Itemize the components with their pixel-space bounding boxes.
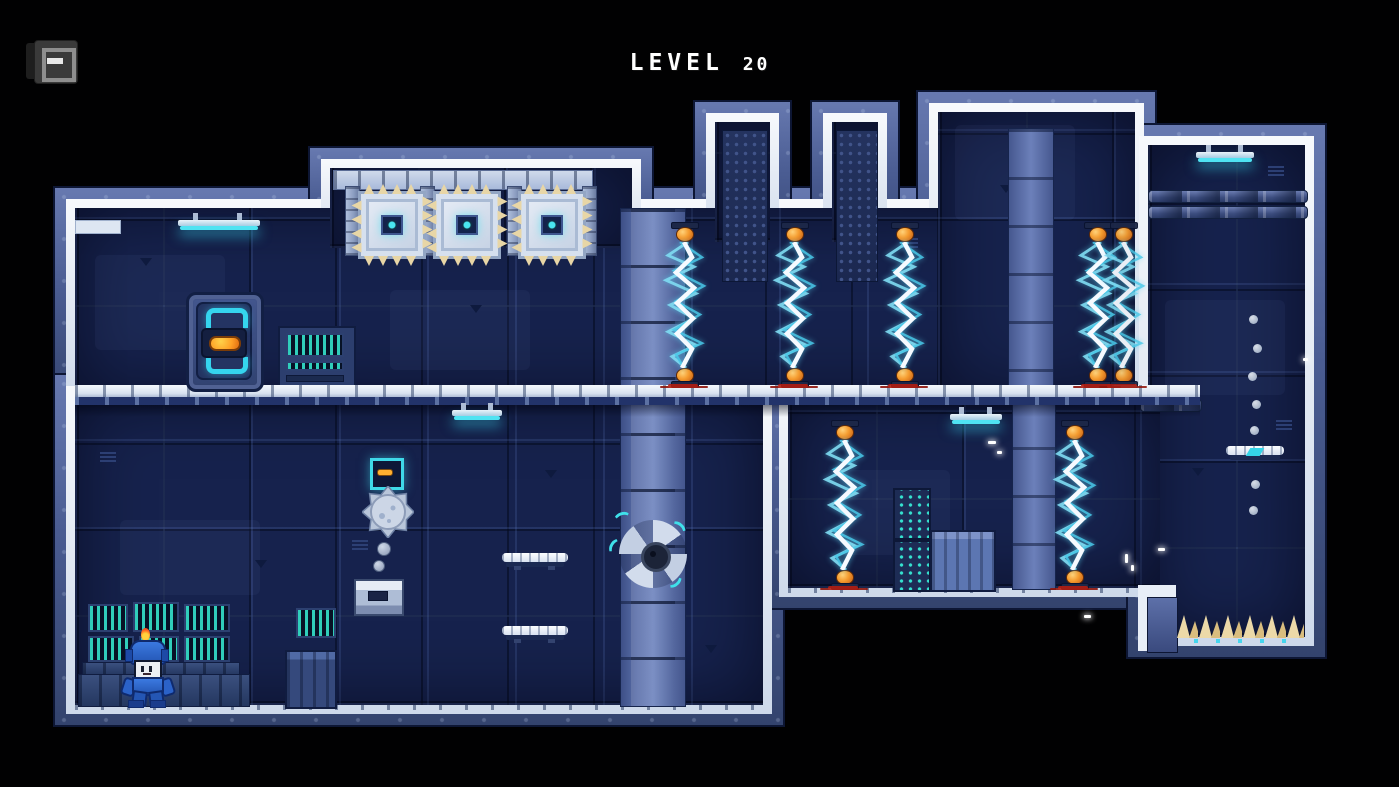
hover-platform	[502, 553, 568, 570]
scorch-mark	[1107, 384, 1137, 388]
scorch-mark	[668, 384, 698, 388]
console-screen	[296, 608, 336, 638]
console-screen	[286, 333, 344, 357]
wall-panel-highlight	[1165, 300, 1285, 395]
spike-block-core	[381, 215, 403, 235]
spike-strip	[364, 256, 420, 267]
ceiling-lamp	[1196, 148, 1254, 164]
electrode-top	[831, 420, 859, 440]
lightning-bolt	[810, 440, 880, 570]
walkway-underside	[75, 397, 1200, 405]
journal-slot	[47, 58, 63, 64]
electric-beam	[810, 420, 880, 590]
player-ear-pod	[161, 649, 169, 662]
floor-spikes	[1176, 611, 1304, 638]
level-title: LEVEL 20	[500, 50, 900, 76]
dispenser-slot	[368, 591, 388, 601]
player-boot	[150, 700, 166, 708]
mini-console	[893, 488, 931, 540]
ball-dispenser	[354, 579, 404, 616]
spike-strip	[439, 183, 495, 194]
scorch-mark	[1058, 586, 1088, 590]
lightning-bolt	[650, 242, 720, 368]
door-bracket-top	[206, 308, 248, 328]
chain-link	[377, 542, 391, 556]
bubble-particle	[1251, 480, 1260, 489]
game-viewport[interactable]: LEVEL 20	[0, 0, 1399, 787]
journal-page-frame	[42, 48, 76, 82]
lightning-bolt	[1040, 440, 1110, 570]
panel-mark	[470, 305, 482, 313]
machine-column	[1008, 128, 1054, 394]
mini-console	[893, 540, 931, 592]
hover-platform	[1226, 446, 1284, 463]
wall-ledge	[75, 220, 121, 234]
sparkle-particle	[1158, 548, 1165, 551]
walkway-shadow	[75, 405, 1200, 417]
sparkle-particle	[1131, 565, 1134, 571]
exit-door	[186, 292, 264, 392]
player-boot	[128, 700, 144, 708]
bubble-particle	[1248, 372, 1257, 381]
pipe	[1148, 206, 1308, 219]
sparkle-particle	[997, 451, 1002, 454]
spike-strip	[351, 197, 362, 253]
journal-icon[interactable]	[26, 40, 76, 82]
sparkle-particle	[988, 441, 996, 444]
wall-panel-highlight	[120, 520, 260, 595]
scorch-mark	[778, 384, 808, 388]
bubble-particle	[1250, 426, 1259, 435]
console-base	[286, 375, 344, 382]
console-screen	[184, 604, 230, 632]
level-title-word: LEVEL	[630, 50, 724, 76]
panel-vent	[1276, 420, 1292, 430]
ceiling-lamp	[178, 216, 260, 232]
panel-vent	[1268, 166, 1284, 176]
door-console	[278, 326, 356, 390]
electric-beam	[650, 222, 720, 388]
spike-strip	[426, 197, 437, 253]
console-screen	[88, 604, 128, 632]
scorch-mark	[888, 384, 918, 388]
spike-strip	[439, 256, 495, 267]
ceiling-lamp	[452, 406, 502, 420]
hover-platform	[502, 626, 568, 643]
panel-mark	[255, 560, 267, 568]
ceiling-lamp	[950, 410, 1002, 424]
bubble-particle	[1253, 344, 1262, 353]
player	[124, 628, 168, 706]
panel-vent	[352, 540, 368, 550]
level-title-number: 20	[743, 54, 771, 75]
spike-block	[433, 191, 501, 259]
panel-mark	[545, 470, 557, 478]
electrode-top	[1110, 222, 1138, 242]
spike-strip	[524, 256, 580, 267]
spike-block	[358, 191, 426, 259]
player-ear-pod	[125, 649, 133, 662]
spike-strip	[511, 197, 522, 253]
sparkle-particle	[1125, 554, 1128, 563]
panel-mark	[705, 645, 717, 653]
electrode-top	[891, 222, 919, 242]
door-handle-light	[209, 336, 241, 351]
crate	[285, 650, 337, 709]
lightning-bolt	[760, 242, 830, 368]
electrode-top	[671, 222, 699, 242]
panel-mark	[1192, 468, 1204, 476]
spike-block-core	[541, 215, 563, 235]
bubble-particle	[1252, 400, 1261, 409]
crate	[930, 530, 996, 592]
electric-beam	[870, 222, 940, 388]
fan-hub	[641, 542, 671, 572]
step-wall-core	[1147, 597, 1178, 653]
chain-link	[373, 560, 385, 572]
spike-block	[518, 191, 586, 259]
electric-beam	[1089, 222, 1159, 388]
wall-panel-highlight	[390, 290, 530, 370]
lightning-bolt	[1089, 242, 1159, 368]
scorch-mark	[828, 586, 858, 590]
switch-light	[377, 469, 393, 476]
electric-beam	[1040, 420, 1110, 590]
console-readout	[286, 361, 344, 371]
door-lock-panel	[201, 328, 247, 358]
panel-mark	[140, 258, 152, 266]
spike-strip	[498, 197, 509, 253]
pipe	[1148, 190, 1308, 203]
spike-strip	[364, 183, 420, 194]
electrode-top	[781, 222, 809, 242]
electric-beam	[760, 222, 830, 388]
console-screen	[184, 636, 230, 662]
electrode-top	[1061, 420, 1089, 440]
sparkle-particle	[1084, 615, 1091, 618]
sparkle-particle	[1303, 358, 1308, 361]
door-bracket-bottom	[206, 357, 248, 374]
bubble-particle	[1249, 506, 1258, 515]
spike-strip	[524, 183, 580, 194]
bubble-particle	[1249, 315, 1258, 324]
spike-strip	[583, 197, 594, 253]
spiked-ball	[362, 486, 414, 538]
panel-vent	[100, 452, 116, 462]
lightning-bolt	[870, 242, 940, 368]
spike-block-core	[456, 215, 478, 235]
